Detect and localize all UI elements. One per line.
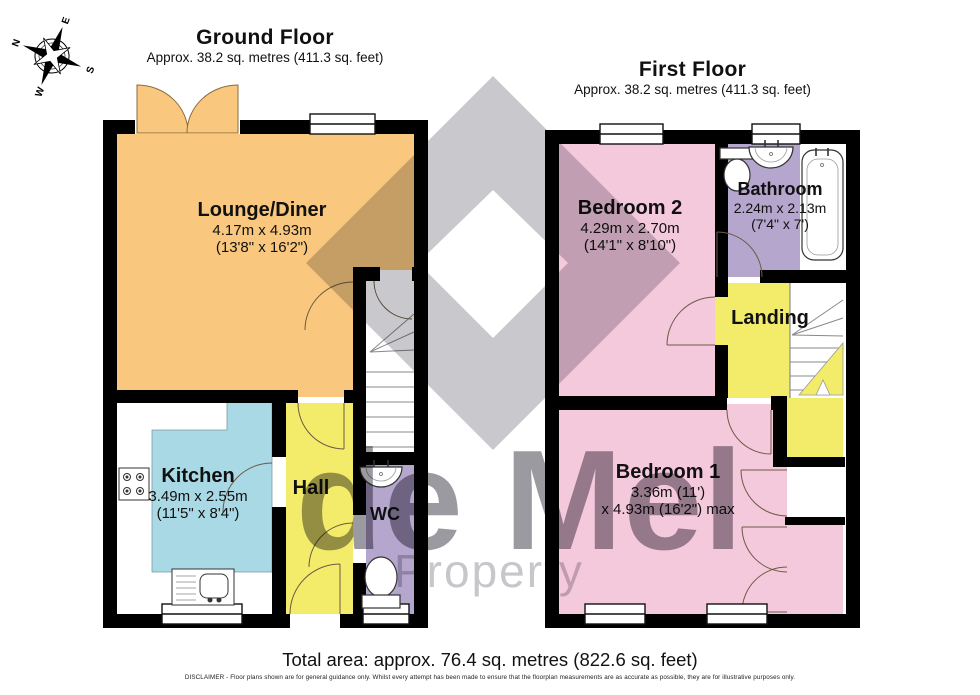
compass-icon: N E S W [6,8,96,100]
first-floor-plan [545,124,860,628]
bedroom2-room [559,144,715,404]
french-doors [135,85,240,134]
bathtub-icon [802,148,843,260]
compass-e: E [60,15,73,25]
kitchen-sink-icon [172,569,234,605]
ground-floor-header: Ground Floor Approx. 38.2 sq. metres (41… [103,26,427,65]
first-floor-header: First Floor Approx. 38.2 sq. metres (411… [535,58,850,97]
front-door-opening [290,614,340,628]
first-floor-subtitle: Approx. 38.2 sq. metres (411.3 sq. feet) [535,82,850,97]
floorplan-drawing [0,0,980,690]
ground-stairs [366,314,414,447]
lounge-room [117,134,414,397]
first-stairs [790,283,843,398]
hall-room [286,403,353,614]
disclaimer-text: DISCLAIMER - Floor plans shown are for g… [0,674,980,681]
floorplan-page: { "ground_floor": { "title": "Ground Flo… [0,0,980,690]
ground-floor-plan [103,85,428,628]
compass-n: N [10,38,23,49]
ground-floor-title: Ground Floor [103,26,427,50]
stove-icon [119,468,149,500]
compass-w: W [34,85,48,98]
first-floor-title: First Floor [535,58,850,82]
landing-strip [787,398,843,467]
total-area-text: Total area: approx. 76.4 sq. metres (822… [0,649,980,671]
wc-toilet-icon [362,557,400,608]
closet [787,467,843,517]
wardrobe-area [787,525,843,614]
ground-floor-subtitle: Approx. 38.2 sq. metres (411.3 sq. feet) [103,50,427,65]
compass-s: S [85,65,96,75]
